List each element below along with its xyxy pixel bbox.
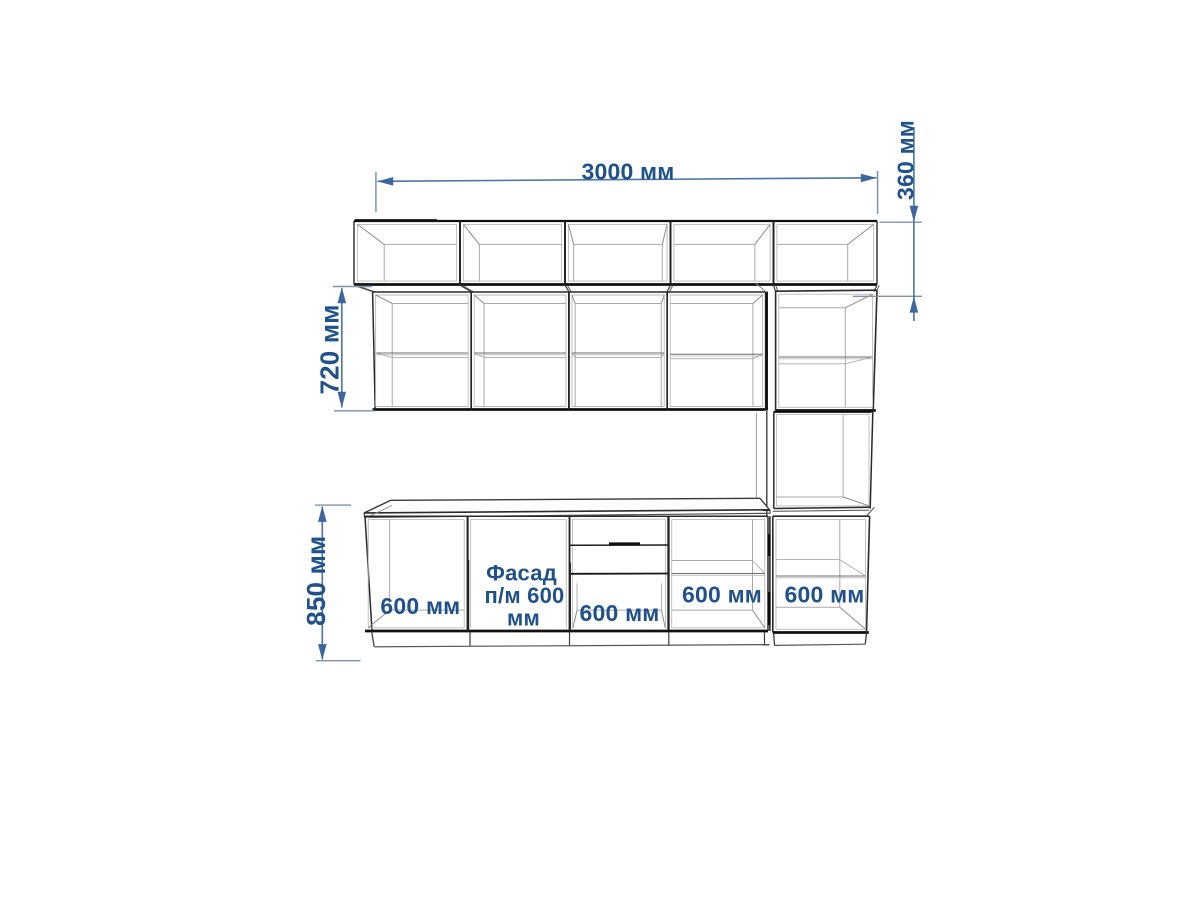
svg-text:600 мм: 600 мм (580, 600, 660, 626)
svg-text:850 мм: 850 мм (301, 536, 331, 626)
svg-text:мм: мм (507, 606, 540, 631)
svg-text:п/м 600: п/м 600 (485, 583, 565, 608)
svg-text:600 мм: 600 мм (785, 582, 865, 608)
svg-text:Фасад: Фасад (486, 561, 557, 586)
svg-text:600 мм: 600 мм (682, 582, 762, 608)
svg-text:3000 мм: 3000 мм (582, 159, 675, 185)
svg-text:720 мм: 720 мм (315, 304, 345, 394)
svg-text:360 мм: 360 мм (893, 120, 919, 200)
svg-text:600 мм: 600 мм (380, 593, 460, 619)
